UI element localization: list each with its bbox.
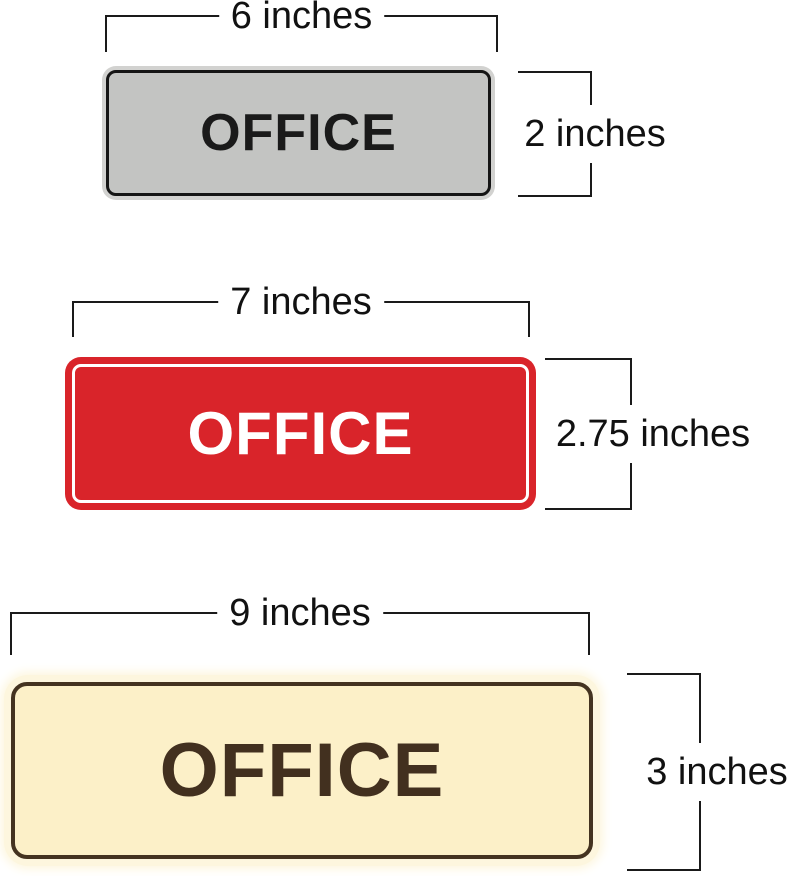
height-dimension-bracket-small: 2 inches [518,71,592,197]
width-dimension-label: 6 inches [219,0,385,37]
office-sign-large: OFFICE [4,675,600,866]
width-dimension-bracket-medium: 7 inches [72,301,530,337]
sign-text: OFFICE [188,404,414,464]
width-dimension-label: 7 inches [218,281,384,323]
width-dimension-bracket-small: 6 inches [105,15,498,52]
height-dimension-bracket-large: 3 inches [627,673,701,871]
sign-text: OFFICE [160,733,445,809]
height-dimension-label: 3 inches [640,743,794,801]
office-sign-medium: OFFICE [65,357,536,510]
width-dimension-label: 9 inches [217,592,383,634]
height-dimension-bracket-medium: 2.75 inches [545,358,632,510]
height-dimension-label: 2 inches [518,105,672,163]
sign-text: OFFICE [200,107,397,159]
office-sign-small: OFFICE [102,66,495,200]
product-dimension-diagram: 6 inches OFFICE 2 inches 7 inches OFFICE… [0,0,795,876]
sign-border-medium: OFFICE [72,364,529,503]
width-dimension-bracket-large: 9 inches [10,612,590,655]
sign-border-small: OFFICE [106,70,491,196]
sign-border-large: OFFICE [11,682,593,859]
height-dimension-label: 2.75 inches [550,405,756,463]
